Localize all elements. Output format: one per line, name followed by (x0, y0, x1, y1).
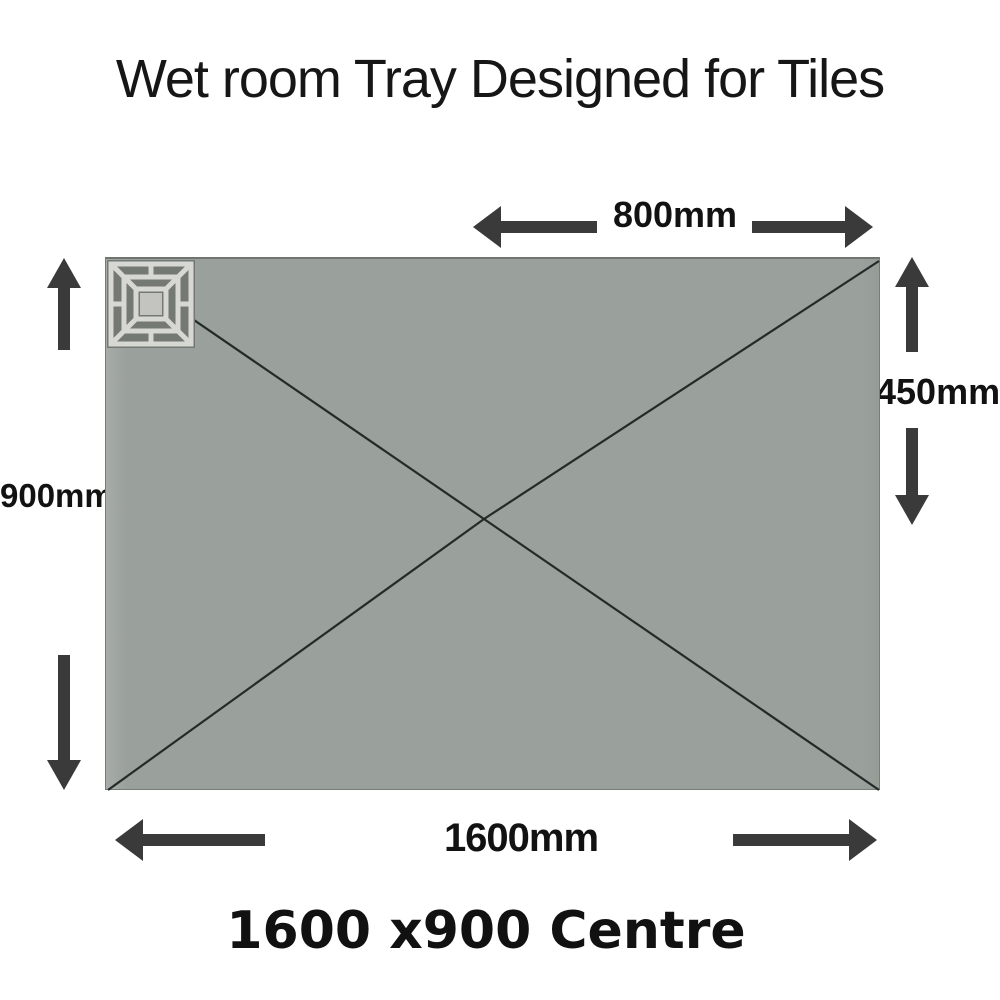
drain-grate-icon (106, 259, 196, 349)
dim-label-450mm: 450mm (876, 371, 1000, 413)
arrow-head-right-icon (849, 819, 877, 861)
arrow-head-up-icon (47, 258, 81, 288)
arrow-head-up-icon (895, 257, 929, 287)
dim-label-1600mm: 1600mm (411, 816, 631, 861)
tray-fall-lines (106, 259, 881, 792)
dim-arrow-right-down-icon (895, 428, 929, 525)
diagram-canvas: Wet room Tray Designed for Tiles 800mm 4… (0, 0, 1000, 1000)
arrow-shaft (141, 834, 265, 846)
dim-arrow-left-up-icon (47, 258, 81, 350)
dim-label-900mm: 900mm (0, 477, 104, 515)
arrow-shaft (499, 221, 597, 233)
page-title: Wet room Tray Designed for Tiles (0, 48, 1000, 110)
arrow-head-right-icon (845, 206, 873, 248)
arrow-head-left-icon (115, 819, 143, 861)
arrow-shaft (906, 428, 918, 497)
arrow-shaft (906, 285, 918, 352)
dim-arrow-top-left-icon (473, 206, 597, 248)
arrow-shaft (733, 834, 851, 846)
arrow-shaft (752, 221, 847, 233)
dim-arrow-left-down-icon (47, 655, 81, 790)
dim-arrow-right-up-icon (895, 257, 929, 352)
arrow-shaft (58, 655, 70, 762)
arrow-shaft (58, 286, 70, 350)
arrow-head-down-icon (47, 760, 81, 790)
dim-arrow-top-right-icon (752, 206, 873, 248)
dim-arrow-bottom-right-icon (733, 819, 877, 861)
arrow-head-left-icon (473, 206, 501, 248)
product-size-caption: 1600 x900 Centre (0, 901, 972, 961)
shower-tray (105, 257, 880, 790)
dim-arrow-bottom-left-icon (115, 819, 265, 861)
arrow-head-down-icon (895, 495, 929, 525)
